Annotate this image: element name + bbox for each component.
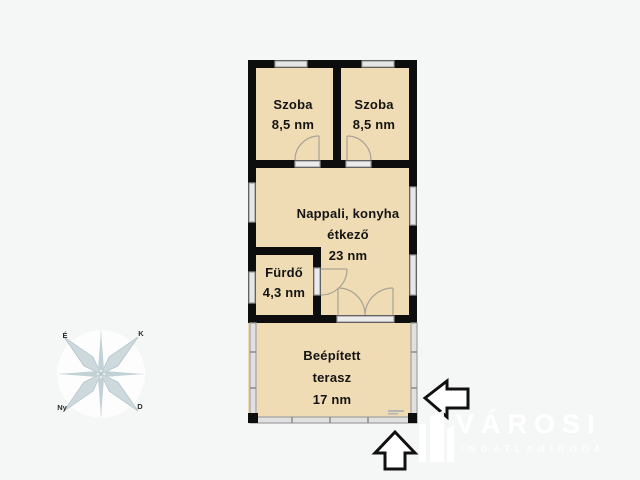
room-area: 23 nm bbox=[297, 245, 400, 266]
room-area: 4,3 nm bbox=[263, 283, 305, 303]
compass-rose-icon: É K Ny D bbox=[57, 329, 145, 418]
room-name-line2: étkező bbox=[297, 224, 400, 245]
door-terrace-double bbox=[337, 316, 394, 322]
room-name: Szoba bbox=[272, 95, 314, 115]
door-furdo bbox=[314, 268, 320, 295]
room-label-furdo: Fürdő 4,3 nm bbox=[263, 263, 305, 303]
room-name: Nappali, konyha bbox=[297, 203, 400, 224]
room-label-szoba-2: Szoba 8,5 nm bbox=[353, 95, 395, 135]
room-label-terasz: Beépített terasz 17 nm bbox=[303, 345, 360, 411]
room-area: 8,5 nm bbox=[272, 115, 314, 135]
door-szoba-2 bbox=[346, 161, 371, 167]
room-area: 17 nm bbox=[303, 389, 360, 411]
window-right-lower bbox=[410, 255, 416, 295]
window-left-living bbox=[249, 183, 255, 222]
room-name: Szoba bbox=[353, 95, 395, 115]
room-label-szoba-1: Szoba 8,5 nm bbox=[272, 95, 314, 135]
watermark-brand: VÁROSI bbox=[456, 409, 602, 440]
window-left-bath bbox=[249, 272, 255, 303]
compass-west-label: Ny bbox=[57, 403, 67, 412]
compass-east-label: K bbox=[138, 329, 144, 338]
room-name-line2: terasz bbox=[303, 367, 360, 389]
window-right-upper bbox=[410, 187, 416, 225]
building-logo-icon bbox=[419, 410, 454, 462]
window-top-right bbox=[362, 61, 394, 67]
up-arrow-icon bbox=[375, 432, 415, 469]
compass-south-label: D bbox=[137, 402, 143, 411]
room-name: Fürdő bbox=[263, 263, 305, 283]
door-szoba-1 bbox=[295, 161, 320, 167]
window-top-left bbox=[275, 61, 307, 67]
watermark-subtitle: INGATLANIRODA bbox=[461, 444, 606, 454]
room-name: Beépített bbox=[303, 345, 360, 367]
floorplan-page: É K Ny D Szoba 8,5 nm Szoba 8,5 nm Nappa… bbox=[0, 0, 640, 480]
room-area: 8,5 nm bbox=[353, 115, 395, 135]
compass-north-label: É bbox=[62, 331, 67, 340]
room-label-nappali: Nappali, konyha étkező 23 nm bbox=[297, 203, 400, 266]
